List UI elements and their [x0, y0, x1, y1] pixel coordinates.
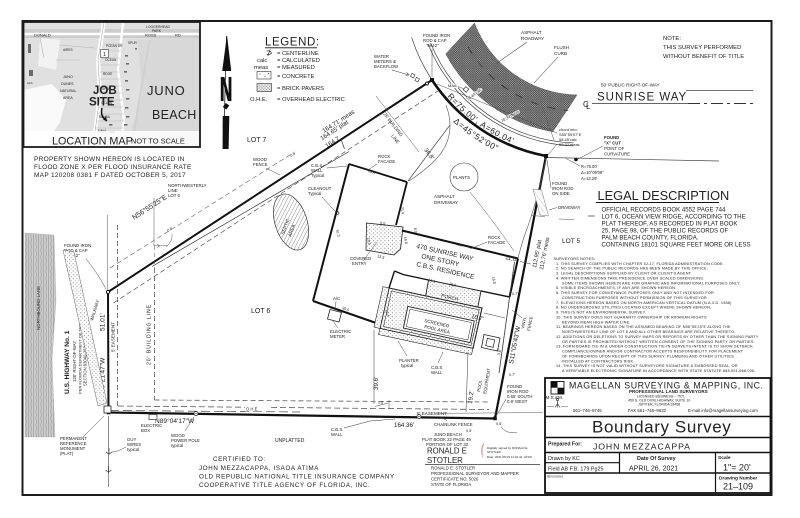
svg-text:1"= 20': 1"= 20' [723, 463, 751, 473]
svg-text:PROFESSIONAL SURVEYOR AND M: PROFESSIONAL SURVEYOR AND MAPPER [431, 471, 519, 476]
svg-text:OFFICIAL RECORDS BOOK 4552: OFFICIAL RECORDS BOOK 4552 PAGE 744 [602, 207, 727, 214]
svg-text:14. THIS SURVEY IS NOT VA: 14. THIS SURVEY IS NOT VALID WITHOUT SUR… [556, 364, 738, 368]
svg-text:59.32'meas: 59.32'meas [559, 142, 580, 147]
svg-text:MAP 120208 0381 F DATED OCTOBE: MAP 120208 0381 F DATED OCTOBER 5, 2017 [34, 172, 186, 179]
svg-text:STATE OF FLORIDA: STATE OF FLORIDA [431, 482, 471, 487]
svg-text:5. VISIBLE ENCROACHMENTS,: 5. VISIBLE ENCROACHMENTS, IF ANY ARE SHO… [556, 286, 676, 290]
svg-text:11. BEARINGS HEREON BASED: 11. BEARINGS HEREON BASED ON THE ASSUMED… [556, 325, 731, 329]
svg-text:ROSS: ROSS [145, 33, 157, 38]
svg-text:E-mail info@magellansurveyi: E-mail info@magellansurveying.com [688, 408, 758, 413]
svg-text:A1A: A1A [27, 81, 33, 85]
svg-text:LOT 6: LOT 6 [251, 308, 270, 315]
svg-text:CHAINLINK FENCE: CHAINLINK FENCE [434, 422, 473, 427]
svg-text:BOX: BOX [141, 428, 150, 433]
svg-text:JUNO: JUNO [147, 83, 186, 98]
svg-text:REVISIONS: REVISIONS [547, 475, 563, 479]
svg-text:DONALD: DONALD [34, 33, 51, 38]
svg-text:Date: 2021.05.03 11:16:41 -04': Date: 2021.05.03 11:16:41 -04'00' [487, 455, 532, 459]
svg-text:0.5': 0.5' [496, 422, 502, 426]
svg-text:WALL: WALL [331, 432, 343, 437]
svg-text:ASPHALT: ASPHALT [521, 30, 542, 35]
svg-text:THIS SURVEY PERFORMED: THIS SURVEY PERFORMED [663, 45, 741, 51]
svg-text:PARK: PARK [152, 29, 162, 33]
svg-text:BEACH: BEACH [152, 108, 197, 122]
svg-text:CERTIFIED TO:: CERTIFIED TO: [213, 456, 266, 463]
svg-text:164.36': 164.36' [394, 422, 414, 429]
svg-text:NOTE:: NOTE: [663, 36, 681, 42]
svg-text:AREA: AREA [63, 96, 73, 100]
svg-text:UNPLATTED: UNPLATTED [275, 438, 305, 444]
svg-text:= BRICK PAVERS: = BRICK PAVERS [277, 86, 324, 92]
svg-text:0.7': 0.7' [512, 292, 518, 296]
svg-text:LOCATION MAP: LOCATION MAP [52, 136, 133, 148]
svg-text:PROFESSIONAL LAND SURVEYORS: PROFESSIONAL LAND SURVEYORS [629, 389, 708, 394]
svg-text:M.S.&M.: M.S.&M. [546, 395, 564, 400]
svg-text:9. THIS IS NOT AN ENVIRO: 9. THIS IS NOT AN ENVIRONMENTAL SURVEY. [556, 311, 646, 315]
svg-text:= MEASURED: = MEASURED [277, 65, 315, 71]
svg-text:typical: typical [401, 363, 413, 368]
svg-text:O.H.E.: O.H.E. [246, 407, 259, 412]
svg-text:5' EASEMENT: 5' EASEMENT [111, 322, 116, 352]
svg-text:= CALCULATED: = CALCULATED [277, 58, 320, 64]
svg-text:0.9' WEST: 0.9' WEST [507, 399, 528, 404]
svg-text:PCEAN DR: PCEAN DR [106, 44, 123, 48]
svg-text:CURVATURE: CURVATURE [604, 152, 630, 157]
svg-text:6. THIS SURVEY FOR CONVEY: 6. THIS SURVEY FOR CONVEYANCE PURPOSES O… [556, 291, 714, 295]
svg-text:NOT TO SCALE: NOT TO SCALE [131, 137, 185, 146]
svg-text:SURVEYORS NOTES:: SURVEYORS NOTES: [554, 257, 596, 261]
svg-text:561–746–8745: 561–746–8745 [573, 408, 602, 413]
svg-text:LOT 6, OCEAN VIEW RIDGE,: LOT 6, OCEAN VIEW RIDGE, ACCORDING TO TH… [602, 214, 746, 221]
svg-text:RONALD E. STOTLER: RONALD E. STOTLER [431, 466, 475, 471]
svg-text:"X" CUT: "X" CUT [604, 141, 621, 146]
svg-text:Boundary Survey: Boundary Survey [592, 418, 731, 437]
svg-text:Scale: Scale [718, 455, 731, 461]
svg-text:L: L [586, 102, 591, 111]
svg-text:1: 1 [103, 52, 106, 58]
svg-text:meas: meas [254, 65, 268, 71]
svg-text:20' BUILDING LINE: 20' BUILDING LINE [147, 304, 153, 365]
svg-text:ASPHALT: ASPHALT [434, 194, 455, 199]
svg-text:typical: typical [171, 443, 183, 448]
svg-text:39.6': 39.6' [373, 377, 380, 390]
svg-text:FLUSH: FLUSH [554, 45, 569, 50]
svg-text:SPUR: SPUR [128, 41, 138, 45]
svg-text:120' RIGHT-OF-WAY: 120' RIGHT-OF-WAY [72, 341, 77, 382]
svg-text:FACADE: FACADE [378, 159, 395, 164]
svg-text:"6942": "6942" [426, 43, 439, 48]
svg-text:FAX 561–746–9632: FAX 561–746–9632 [628, 408, 667, 413]
svg-text:COMPLIANCE/OWNER AND/OR CONT: COMPLIANCE/OWNER AND/OR CONTRACTOR ACCEP… [562, 350, 744, 354]
svg-text:JOB: JOB [93, 85, 117, 97]
svg-text:FLOOD ZONE X PER FLOOD INSURAN: FLOOD ZONE X PER FLOOD INSURANCE RATE [34, 164, 192, 171]
svg-text:DRIVEWAY: DRIVEWAY [558, 205, 581, 210]
svg-text:DUNES: DUNES [61, 82, 74, 86]
svg-text:AIRES: AIRES [63, 48, 73, 52]
svg-text:(PLAT): (PLAT) [60, 451, 74, 456]
svg-text:4. WRITTEN DIMENSIONS TAKE: 4. WRITTEN DIMENSIONS TAKE PRESIDENCE OV… [556, 277, 704, 281]
svg-text:7. ELEVATIONS HEREON BASED: 7. ELEVATIONS HEREON BASED ON NORTH AMER… [556, 301, 732, 305]
svg-text:BEYOND MEAN HIGH WATER LIN: BEYOND MEAN HIGH WATER LINE. [562, 320, 631, 324]
svg-text:NORTHBOUND LANE: NORTHBOUND LANE [36, 286, 41, 330]
svg-text:SUNRISE WAY: SUNRISE WAY [597, 92, 687, 104]
svg-text:ROADWAY: ROADWAY [521, 36, 544, 41]
svg-text:PALM BEACH COUNTY, FLORIDA.: PALM BEACH COUNTY, FLORIDA. [602, 235, 699, 242]
svg-text:Δ=10°09'09": Δ=10°09'09" [581, 170, 604, 175]
svg-text:FENCE: FENCE [253, 162, 268, 167]
svg-text:OCEAN: OCEAN [105, 58, 117, 62]
svg-text:1. THIS SURVEY COMPLIES W: 1. THIS SURVEY COMPLIES WITH CHAPTER 5J-… [556, 262, 724, 266]
svg-text:APRIL 26, 2021: APRIL 26, 2021 [629, 466, 678, 473]
svg-text:CURB: CURB [554, 51, 567, 56]
svg-text:21.4: 21.4 [400, 207, 405, 215]
svg-text:= CENTERLINE: = CENTERLINE [277, 51, 319, 57]
svg-text:NORTHWESTERLY LINE OF LOT: NORTHWESTERLY LINE OF LOT 6 AND ALL OTHE… [562, 330, 736, 334]
svg-text:FOUND: FOUND [604, 135, 619, 140]
svg-text:LEGEND:: LEGEND: [265, 37, 320, 49]
svg-text:OF FORMBOARDS UPON RECEIPT: OF FORMBOARDS UPON RECEIPT OF THIS SURVE… [562, 354, 734, 358]
svg-text:CONSTRUCTION PURPOSES WITHOU: CONSTRUCTION PURPOSES WITHOUT PERMISSION… [562, 296, 708, 300]
svg-text:WITHOUT BENEFIT OF TITLE: WITHOUT BENEFIT OF TITLE [663, 54, 744, 60]
svg-text:Field AB F.B. 179 Pg25: Field AB F.B. 179 Pg25 [548, 467, 603, 473]
svg-text:= OVERHEAD ELECTRIC: = OVERHEAD ELECTRIC [277, 97, 345, 103]
svg-text:A/C: A/C [333, 296, 340, 301]
svg-text:LOT 5: LOT 5 [562, 238, 581, 245]
svg-text:LEGAL DESCRIPTION: LEGAL DESCRIPTION [598, 188, 730, 203]
svg-text:BACKFLOW: BACKFLOW [374, 64, 399, 69]
svg-text:51.01': 51.01' [100, 313, 107, 331]
svg-text:10. THIS SURVEY DOES NOT: 10. THIS SURVEY DOES NOT GUARANTY OWNERS… [556, 315, 707, 319]
svg-text:METER: METER [330, 334, 345, 339]
svg-text:A=13.29': A=13.29' [581, 176, 597, 181]
svg-text:POINT OF: POINT OF [604, 146, 625, 151]
svg-text:WALL: WALL [431, 370, 443, 375]
svg-text:0.5': 0.5' [466, 429, 472, 433]
svg-text:JUPITER, FLORIDA 33458: JUPITER, FLORIDA 33458 [638, 403, 680, 407]
svg-text:ON SIDE: ON SIDE [552, 191, 570, 196]
svg-text:STOTLER: STOTLER [487, 450, 502, 454]
svg-text:3. LEGAL DESCRIPTIONS SUPP: 3. LEGAL DESCRIPTIONS SUPPLIED BY CLIENT… [556, 272, 692, 276]
svg-text:LOT 7: LOT 7 [247, 137, 266, 144]
svg-text:COOPERATIVE TITLE AGENCY OF FL: COOPERATIVE TITLE AGENCY OF FLORIDA, INC… [199, 482, 370, 489]
svg-text:CONTAINING 18101 SQUARE FEE: CONTAINING 18101 SQUARE FEET MORE OR LES… [602, 242, 751, 249]
svg-text:RONALD E: RONALD E [427, 447, 467, 456]
svg-text:0.7': 0.7' [509, 373, 515, 377]
svg-text:SOME ITEMS SHOWN HEREIN AR: SOME ITEMS SHOWN HEREIN ARE FOR GRAPHIC … [562, 281, 740, 285]
svg-text:U.S. HIGHWAY No. 1: U.S. HIGHWAY No. 1 [64, 330, 71, 394]
svg-text:FACADE: FACADE [488, 240, 505, 245]
svg-text:12. ADDITIONS OR DELETIONS: 12. ADDITIONS OR DELETIONS TO SURVEY MAP… [556, 335, 759, 339]
svg-text:PROPERTY SHOWN HEREON IS LOCAT: PROPERTY SHOWN HEREON IS LOCATED IN [34, 156, 185, 163]
svg-text:25, PAGE 98, OF THE PUBLI: 25, PAGE 98, OF THE PUBLIC RECORDS OF [602, 228, 729, 235]
svg-text:PLANTS: PLANTS [453, 175, 470, 180]
svg-text:typical: typical [127, 447, 139, 452]
svg-text:O.H.E.: O.H.E. [250, 97, 268, 103]
svg-text:OLD REPUBLIC NATIONAL TITLE IN: OLD REPUBLIC NATIONAL TITLE INSURANCE CO… [199, 474, 395, 481]
svg-text:RDGE: RDGE [103, 72, 112, 76]
svg-text:OR PARTIES IS PROHIBITED W: OR PARTIES IS PROHIBITED WITHOUT WRITTEN… [562, 340, 755, 344]
svg-text:JOHN MEZZACAPPA, ISAOA ATIMA: JOHN MEZZACAPPA, ISAOA ATIMA [199, 465, 319, 472]
svg-text:RD: RD [175, 33, 181, 38]
svg-text:8. NO UNDERGROUND UTILITIE: 8. NO UNDERGROUND UTILITIES LOCATED EXCE… [556, 306, 711, 310]
svg-text:= CONCRETE: = CONCRETE [277, 74, 315, 80]
svg-text:CERTIFICATE NO. 5026: CERTIFICATE NO. 5026 [431, 477, 479, 482]
svg-text:NATURAL: NATURAL [60, 89, 77, 93]
svg-text:Typical: Typical [311, 173, 324, 178]
svg-text:JUNO: JUNO [63, 75, 73, 79]
svg-text:R=75.00': R=75.00' [581, 164, 598, 169]
svg-text:2. NO SEARCH OF THE PUBL: 2. NO SEARCH OF THE PUBLIC RECORDS HAS B… [556, 267, 708, 271]
svg-text:INSTALLED AT CONTRACTORS RI: INSTALLED AT CONTRACTORS RISK. [562, 359, 634, 363]
svg-text:DRIVEWAY: DRIVEWAY [434, 200, 458, 205]
svg-text:SITE: SITE [89, 97, 115, 109]
svg-text:calc: calc [257, 58, 267, 64]
svg-text:Date Of Survey: Date Of Survey [637, 456, 676, 462]
svg-text:Typical: Typical [308, 191, 321, 196]
svg-text:MAIL: MAIL [448, 83, 458, 88]
svg-text:A VERIFIABLE ELECTRONIC SIG: A VERIFIABLE ELECTRONIC SIGNATURE IN ACC… [562, 369, 756, 373]
svg-text:Prepared For:: Prepared For: [548, 442, 582, 448]
svg-text:Drawn by KC: Drawn by KC [548, 456, 580, 462]
svg-text:50' PUBLIC RIGHT-OF-WAY: 50' PUBLIC RIGHT-OF-WAY [601, 83, 660, 88]
svg-text:ENTRY: ENTRY [352, 261, 367, 266]
svg-text:PLAT THEREOF, AS RECORDED: PLAT THEREOF, AS RECORDED IN PLAT BOOK [602, 221, 738, 228]
svg-text:JOHN MEZZACAPPA: JOHN MEZZACAPPA [593, 442, 691, 452]
svg-text:LOT 6: LOT 6 [168, 193, 180, 198]
svg-text:STOTLER: STOTLER [427, 456, 463, 465]
svg-text:13. FORM BOARD TIE-IN & U: 13. FORM BOARD TIE-IN & UNDER CONSTRUCTI… [556, 345, 753, 349]
svg-text:21–109: 21–109 [723, 482, 753, 492]
